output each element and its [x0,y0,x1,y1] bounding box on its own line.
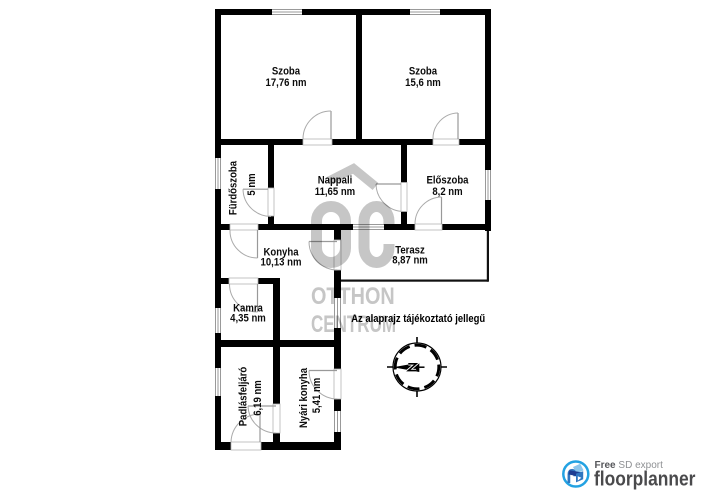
svg-text:10,13 nm: 10,13 nm [261,257,302,269]
svg-text:5,41 nm: 5,41 nm [312,378,324,414]
svg-text:6,19 nm: 6,19 nm [252,380,264,416]
svg-text:17,76 nm: 17,76 nm [266,77,307,89]
svg-text:Szoba: Szoba [409,66,437,78]
svg-text:CENTRUM: CENTRUM [311,311,396,338]
svg-text:5 nm: 5 nm [246,173,258,195]
svg-text:8,87 nm: 8,87 nm [392,255,428,267]
svg-text:8,2 nm: 8,2 nm [432,186,462,198]
svg-text:Szoba: Szoba [272,66,300,78]
svg-text:15,6 nm: 15,6 nm [405,77,441,89]
svg-text:Fürdőszoba: Fürdőszoba [228,161,240,215]
svg-text:OTTHON: OTTHON [311,282,395,309]
svg-text:4,35 nm: 4,35 nm [230,313,266,325]
svg-text:11,65 nm: 11,65 nm [315,186,355,198]
svg-text:Padlásfeljáró: Padlásfeljáró [238,367,250,427]
svg-text:Nyári konyha: Nyári konyha [298,368,310,428]
svg-text:Előszoba: Előszoba [427,175,469,187]
svg-text:floorplanner: floorplanner [594,467,695,489]
